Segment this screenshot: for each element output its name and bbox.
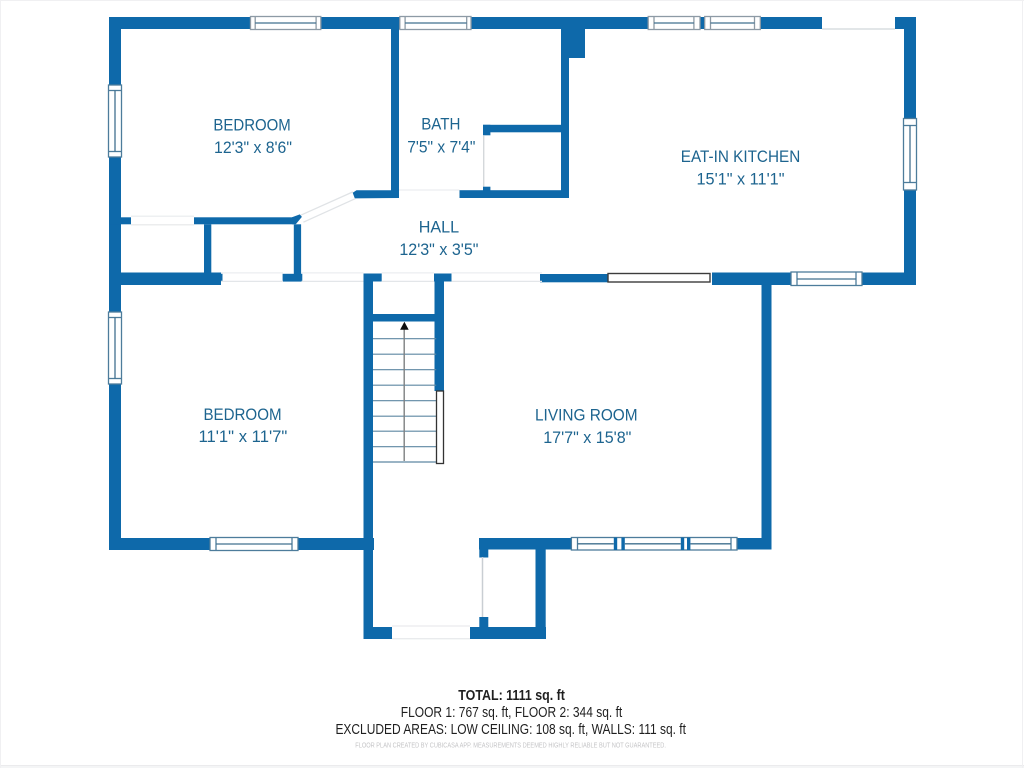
svg-text:EAT-IN KITCHEN: EAT-IN KITCHEN xyxy=(681,147,801,166)
svg-text:12'3" x 3'5": 12'3" x 3'5" xyxy=(399,240,478,259)
svg-text:BATH: BATH xyxy=(421,115,460,134)
svg-text:15'1" x 11'1": 15'1" x 11'1" xyxy=(697,170,785,189)
svg-text:12'3" x 8'6": 12'3" x 8'6" xyxy=(214,138,292,157)
svg-text:TOTAL: 1111 sq. ft: TOTAL: 1111 sq. ft xyxy=(458,688,565,704)
svg-text:17'7" x 15'8": 17'7" x 15'8" xyxy=(543,428,631,447)
svg-text:11'1" x 11'7": 11'1" x 11'7" xyxy=(198,427,287,446)
svg-text:EXCLUDED AREAS: LOW CEILING: 1: EXCLUDED AREAS: LOW CEILING: 108 sq. ft,… xyxy=(335,722,686,738)
svg-text:7'5" x 7'4": 7'5" x 7'4" xyxy=(407,137,475,156)
svg-text:BEDROOM: BEDROOM xyxy=(213,115,290,134)
svg-text:LIVING ROOM: LIVING ROOM xyxy=(535,406,638,425)
svg-text:FLOOR PLAN CREATED BY CUBICASA: FLOOR PLAN CREATED BY CUBICASA APP. MEAS… xyxy=(355,741,666,750)
svg-text:BEDROOM: BEDROOM xyxy=(203,405,281,424)
svg-text:FLOOR 1: 767 sq. ft, FLOOR 2:: FLOOR 1: 767 sq. ft, FLOOR 2: 344 sq. ft xyxy=(401,705,623,721)
svg-text:HALL: HALL xyxy=(419,217,459,236)
